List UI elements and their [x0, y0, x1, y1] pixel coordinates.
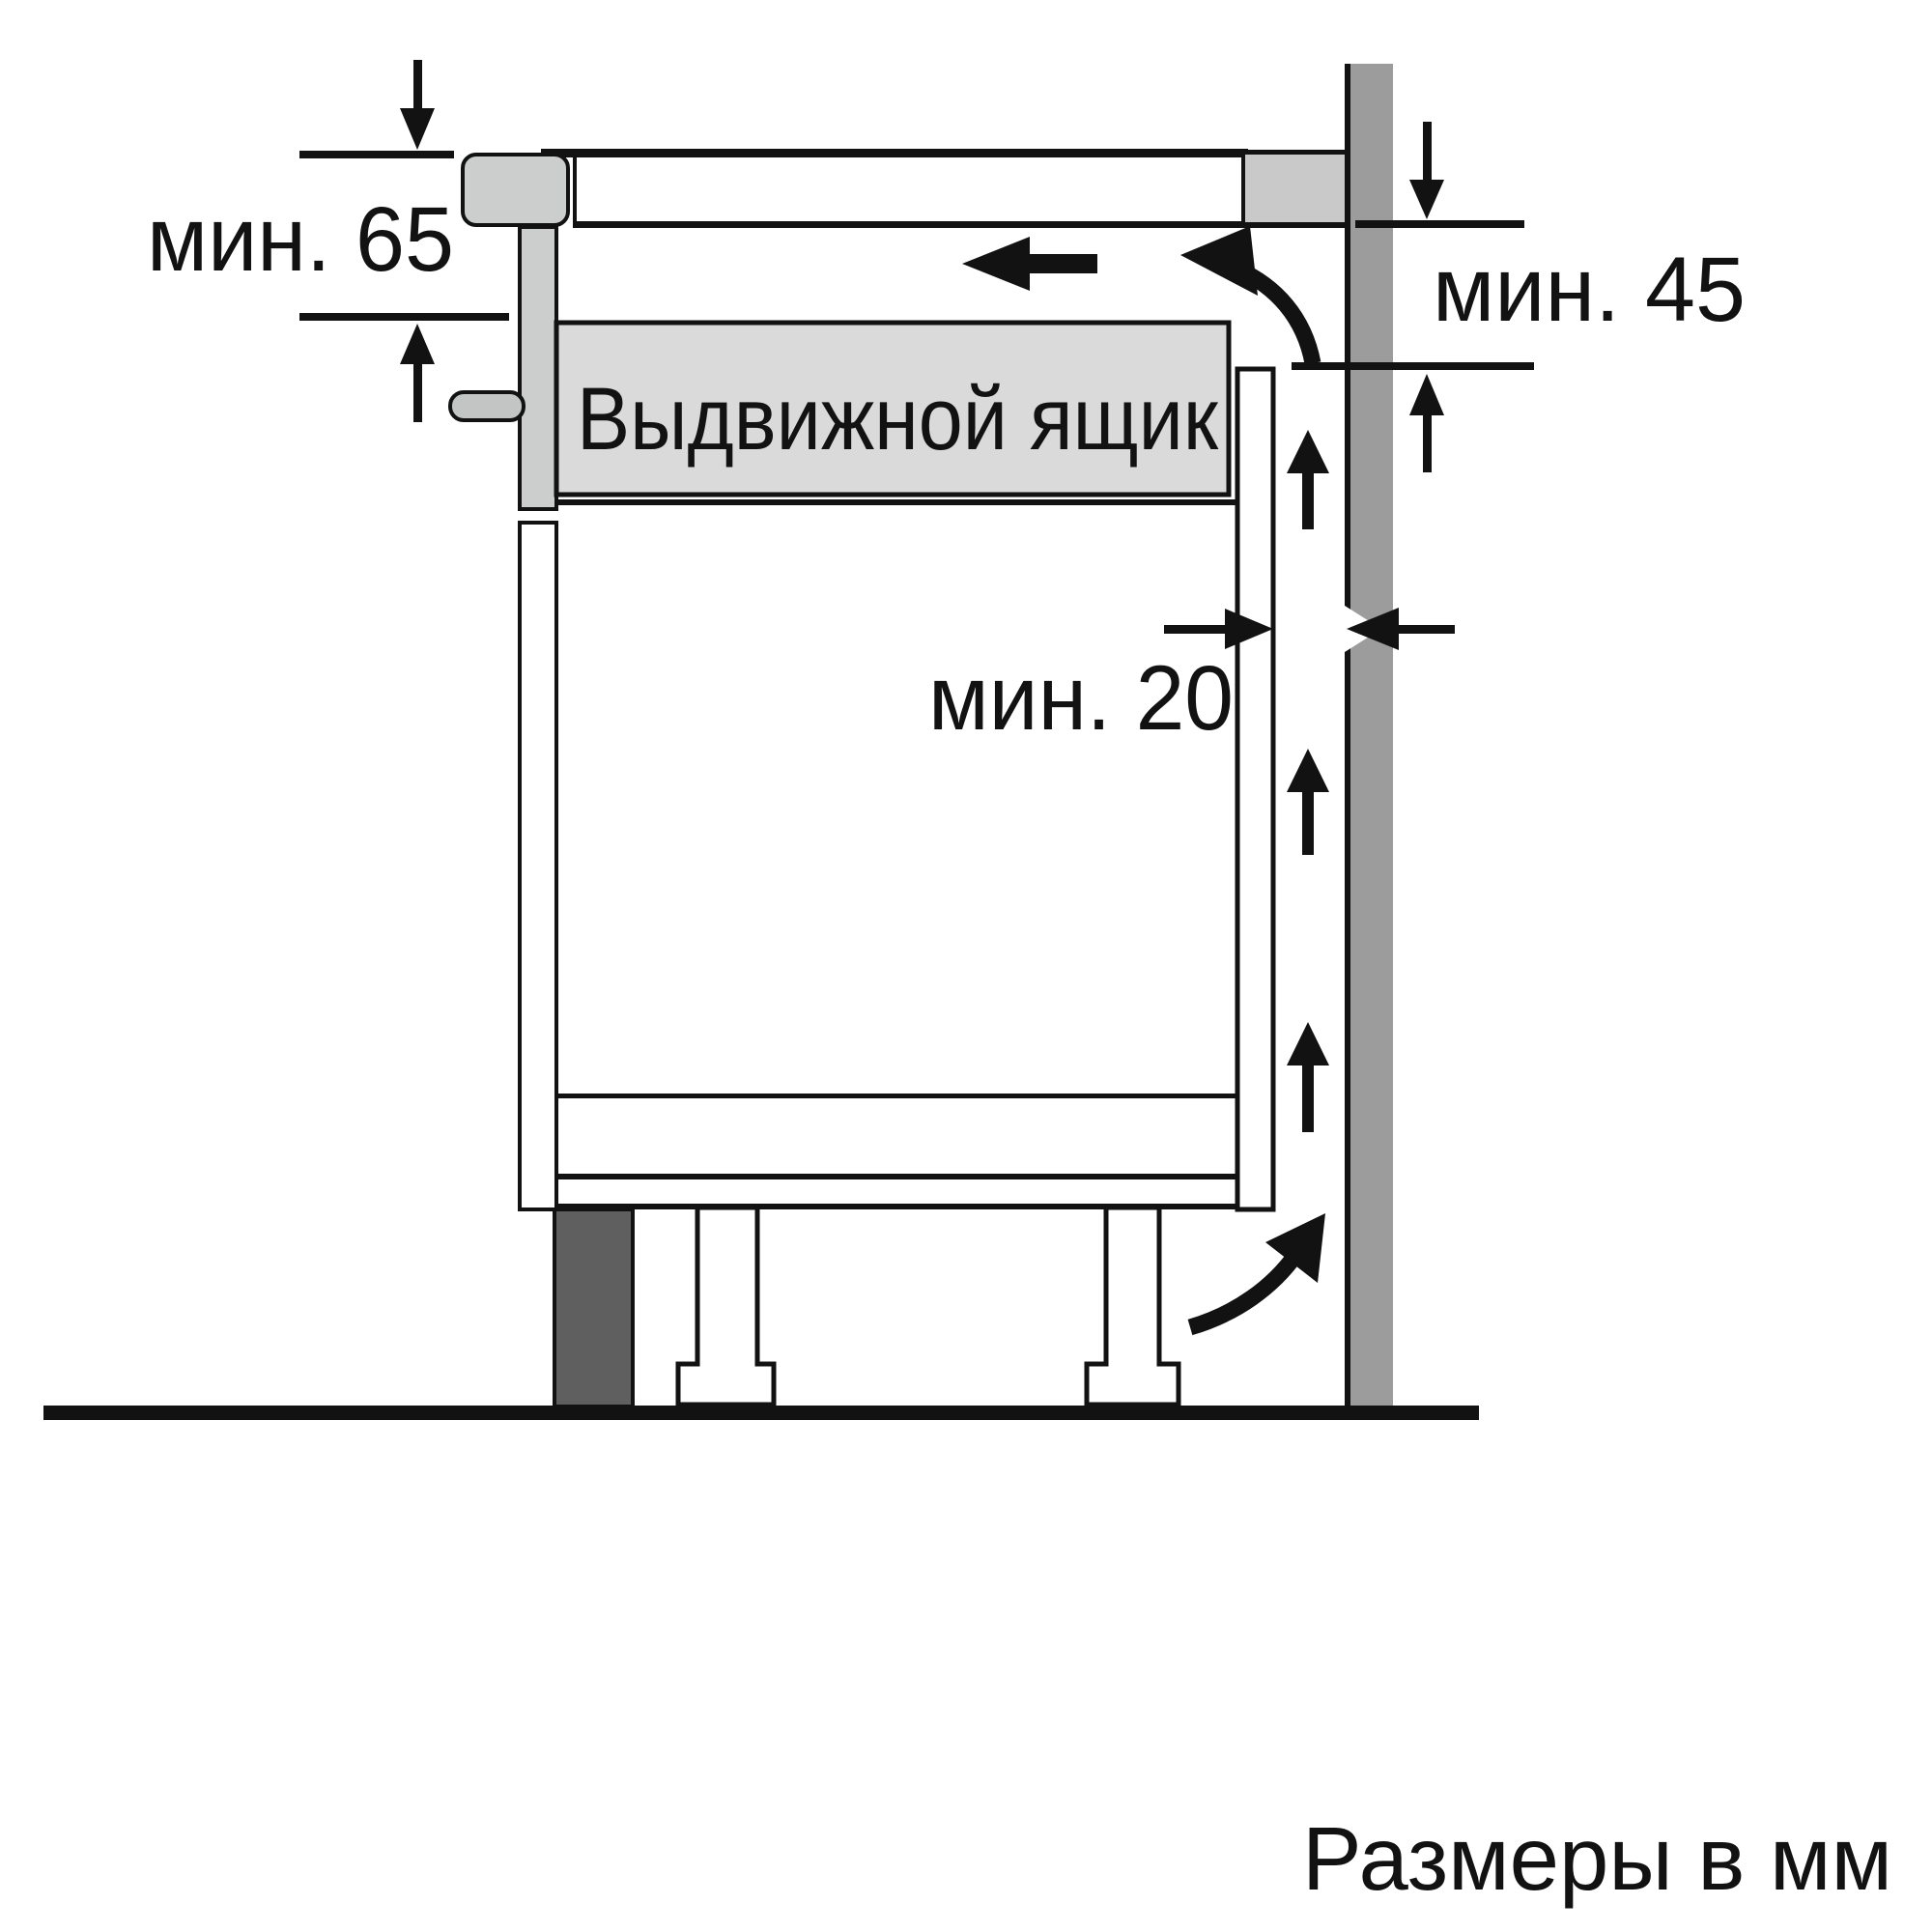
plinth-panel [554, 1209, 633, 1406]
airflow-up-arrow-2-icon [1287, 749, 1329, 855]
cabinet-side-panel [520, 523, 556, 1209]
hob-body [463, 155, 568, 225]
cabinet-interior-bottom [556, 1094, 1237, 1098]
airflow-up-arrow-3-icon [1287, 1022, 1329, 1132]
airflow-left-arrow-icon [962, 237, 1097, 291]
dim65-lower-line [299, 313, 509, 321]
dim45-down-arrow-icon [1409, 122, 1444, 219]
worktop-top-edge-thin [1245, 150, 1350, 155]
dim45-upper-line [1355, 220, 1524, 228]
cabinet-leg-front [678, 1207, 774, 1405]
worktop-top-edge [541, 149, 1248, 157]
floor-line [43, 1406, 1479, 1420]
dim65-upper-line [299, 151, 454, 158]
dim45-up-arrow-icon [1409, 374, 1444, 472]
dim45-lower-line [1292, 362, 1534, 370]
dim65-down-arrow-icon [400, 60, 435, 150]
cabinet-leg-rear [1087, 1207, 1179, 1405]
terminal-knob-icon [450, 392, 524, 420]
airflow-curved-bottom-arrow-icon [1190, 1213, 1325, 1327]
wall-left-edge [1345, 64, 1350, 1406]
dim20-label: мин. 20 [928, 647, 1234, 750]
dim65-label: мин. 65 [147, 188, 454, 291]
worktop-bottom-edge [573, 221, 1345, 228]
worktop-end-edge [1241, 155, 1245, 222]
dim45-label: мин. 45 [1433, 239, 1746, 341]
page-root: Выдвижной ящик мин. 65 [0, 0, 1932, 1932]
wall [1350, 64, 1393, 1406]
hob-housing [520, 227, 556, 509]
rear-vent-panel [1237, 369, 1273, 1209]
worktop-left-edge [573, 157, 577, 221]
installation-diagram: Выдвижной ящик мин. 65 [0, 0, 1932, 1932]
worktop-end-section [1245, 155, 1345, 222]
dim65-up-arrow-icon [400, 324, 435, 422]
drawer-bottom-rail [556, 499, 1237, 505]
worktop-body [573, 157, 1245, 221]
caption-units: Размеры в мм [1302, 1808, 1892, 1909]
cabinet-base-top [556, 1174, 1273, 1179]
drawer-label: Выдвижной ящик [577, 370, 1219, 469]
airflow-up-arrow-1-icon [1287, 430, 1329, 529]
